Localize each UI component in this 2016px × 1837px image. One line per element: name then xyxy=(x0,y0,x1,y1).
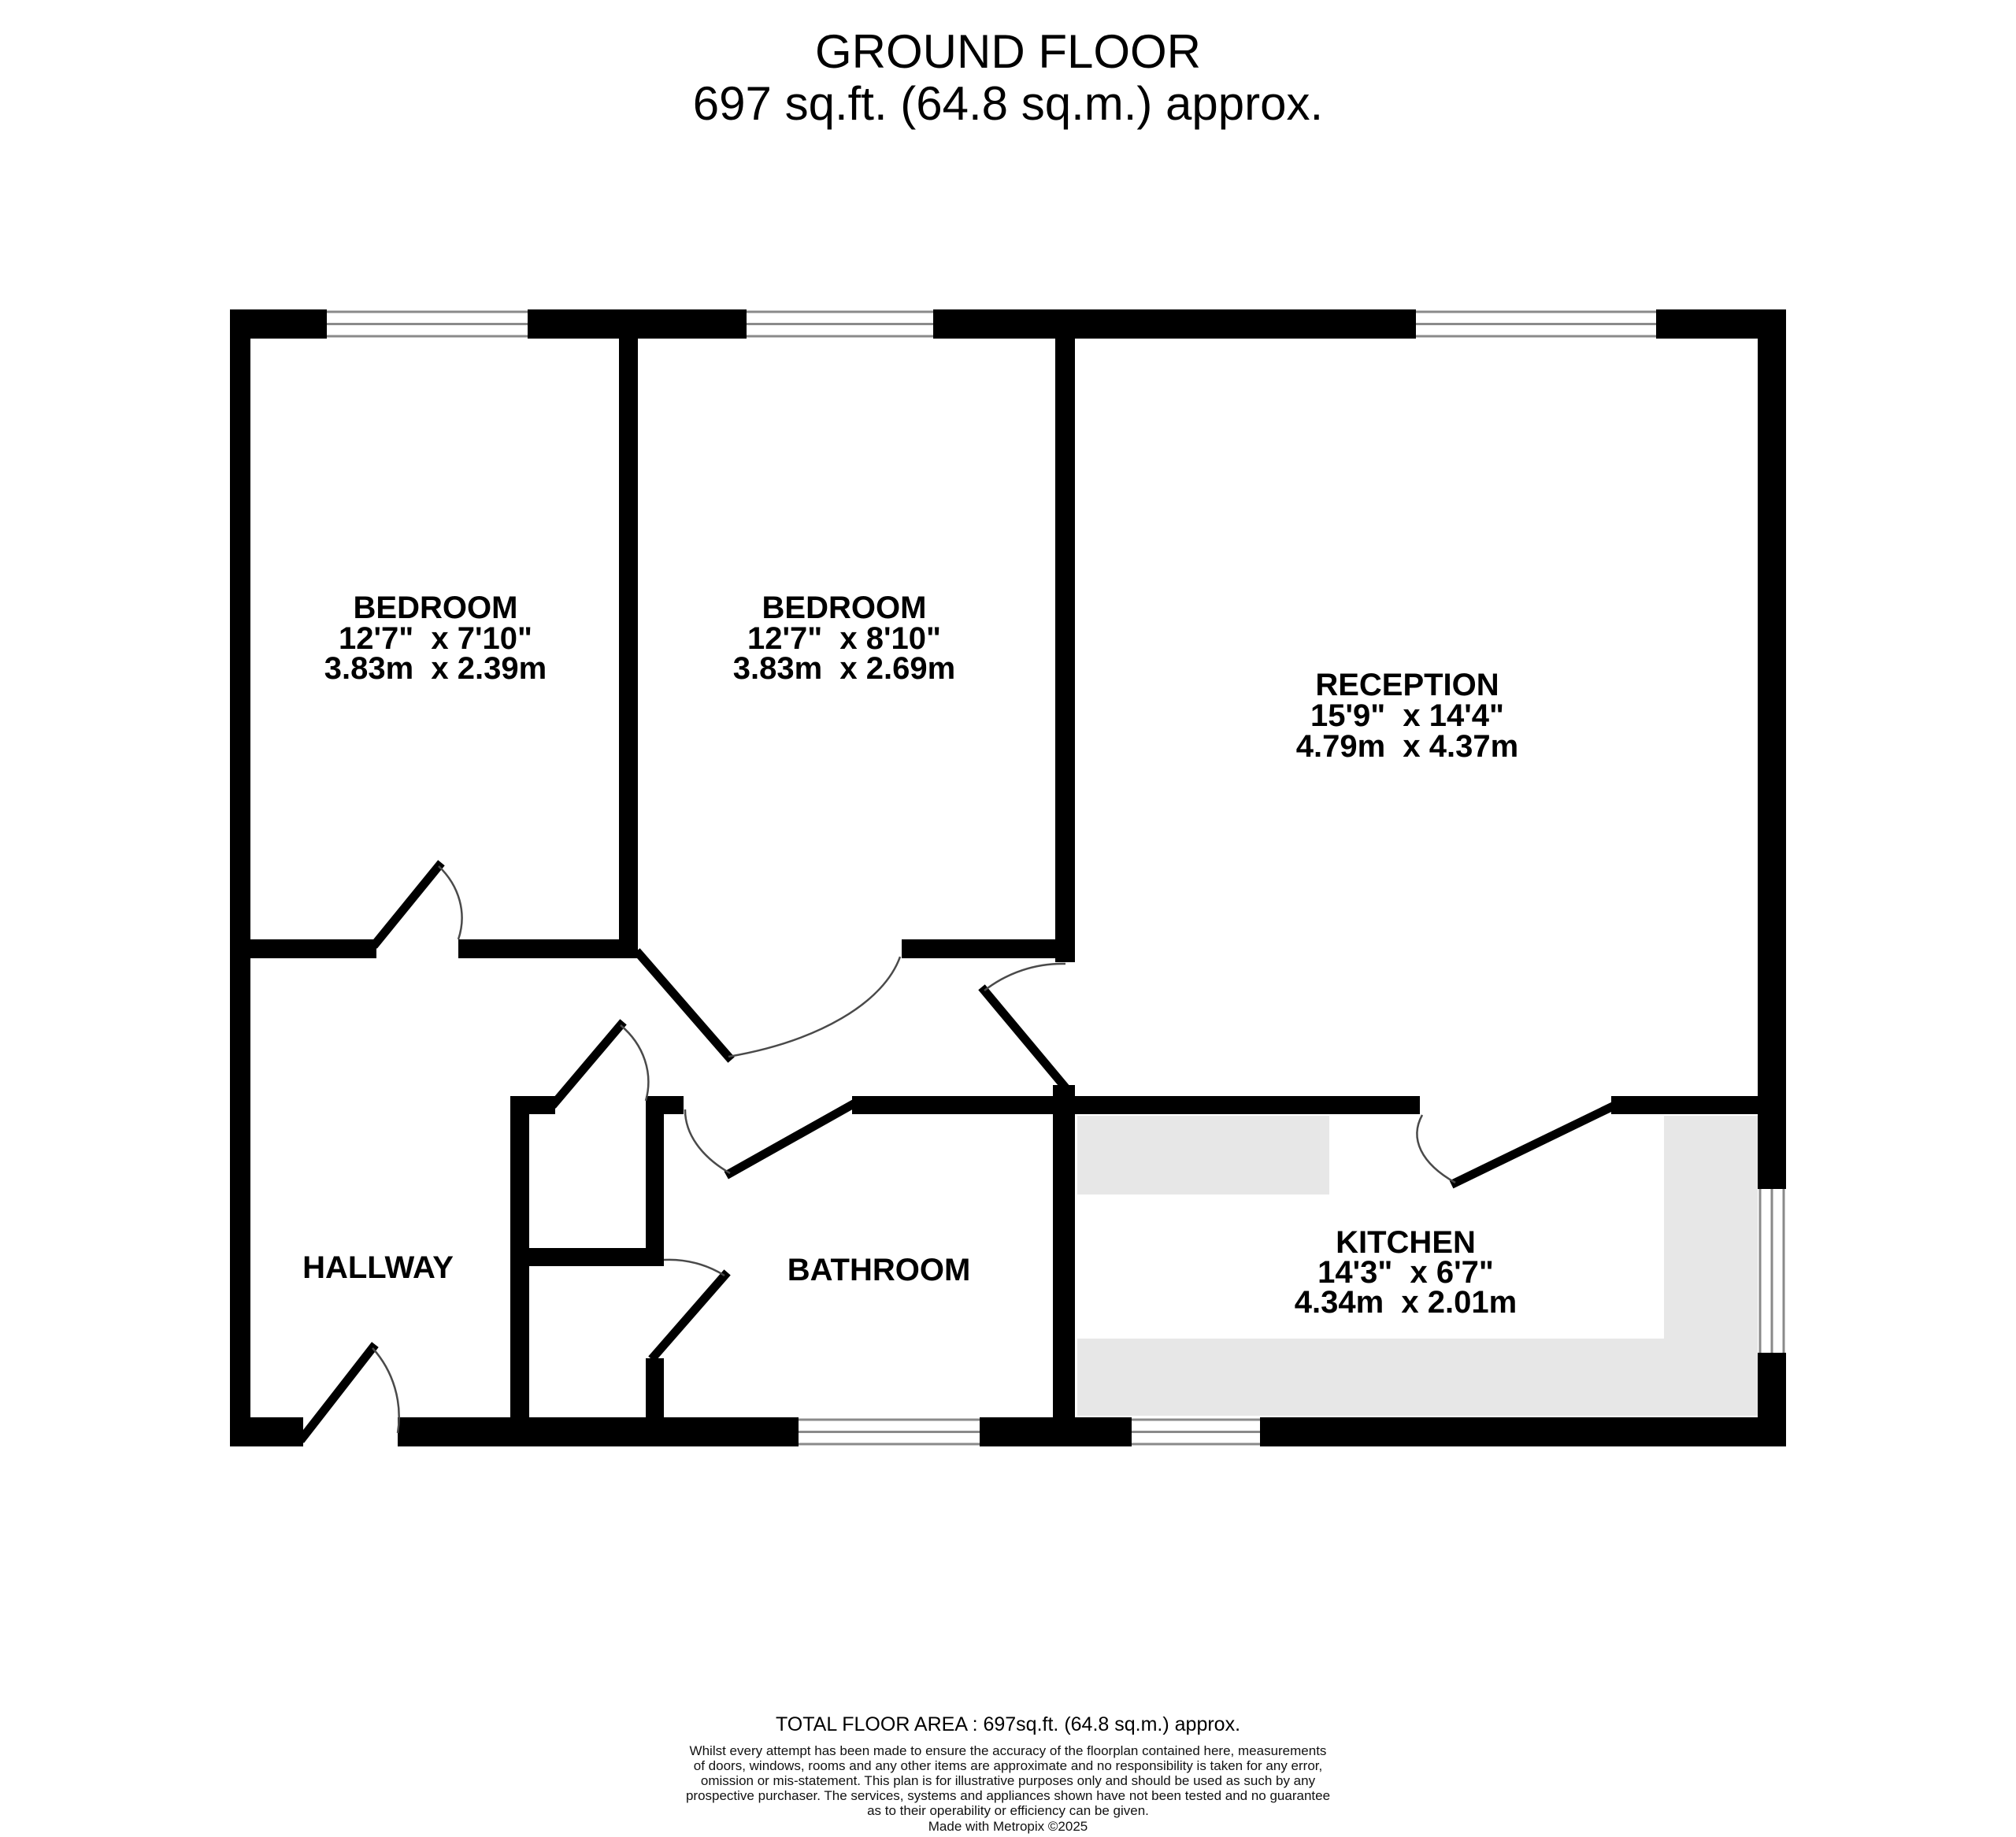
wall-bedrooms-bottom-b xyxy=(458,939,638,958)
wall-bedroom1-bedroom2 xyxy=(619,335,638,958)
wall-bathroom-top xyxy=(852,1096,1055,1114)
wall-closet-top-jamb xyxy=(529,1096,555,1114)
window-bedroom2 xyxy=(747,309,933,339)
room-dim-metric: 4.34m x 2.01m xyxy=(1295,1285,1517,1320)
room-name: BEDROOM xyxy=(354,591,518,625)
wall-exterior-left xyxy=(230,309,250,1446)
disclaimer-line: as to their operability or efficiency ca… xyxy=(867,1803,1149,1818)
credit-line: Made with Metropix ©2025 xyxy=(928,1819,1088,1834)
floorplan-canvas: GROUND FLOOR 697 sq.ft. (64.8 sq.m.) app… xyxy=(0,0,2016,1837)
kitchen-counter-top xyxy=(1077,1116,1329,1194)
wall-bedrooms-bottom-c xyxy=(902,939,1055,958)
title-line1: GROUND FLOOR xyxy=(815,25,1201,78)
wall-bathroom-kitchen xyxy=(1053,1085,1075,1446)
room-name: RECEPTION xyxy=(1315,668,1499,702)
disclaimer-line: of doors, windows, rooms and any other i… xyxy=(694,1758,1322,1773)
title-line2: 697 sq.ft. (64.8 sq.m.) approx. xyxy=(693,77,1323,130)
room-label-bathroom: BATHROOM xyxy=(787,1253,971,1287)
wall-exterior-bottom xyxy=(230,1417,1786,1446)
room-name: BEDROOM xyxy=(762,591,927,625)
wall-bathroom-lower-stub xyxy=(646,1358,664,1417)
room-dim-imperial: 15'9" x 14'4" xyxy=(1310,698,1504,733)
window-bedroom1 xyxy=(327,309,528,339)
room-label-bedroom1: BEDROOM 12'7" x 7'10" 3.83m x 2.39m xyxy=(324,591,547,686)
wall-bedrooms-bottom-a xyxy=(250,939,376,958)
window-kitchen-right xyxy=(1758,1189,1786,1353)
wall-closet-divider xyxy=(510,1248,664,1266)
window-kitchen-bottom xyxy=(1132,1417,1260,1446)
disclaimer-line: prospective purchaser. The services, sys… xyxy=(686,1788,1330,1803)
room-label-reception: RECEPTION 15'9" x 14'4" 4.79m x 4.37m xyxy=(1296,668,1518,764)
room-label-bedroom2: BEDROOM 12'7" x 8'10" 3.83m x 2.69m xyxy=(733,591,955,686)
disclaimer-line: omission or mis-statement. This plan is … xyxy=(701,1773,1316,1788)
wall-kitchen-top-right xyxy=(1611,1096,1758,1114)
room-dim-metric: 3.83m x 2.69m xyxy=(733,651,955,686)
room-dim-metric: 3.83m x 2.39m xyxy=(324,651,547,686)
room-dim-metric: 4.79m x 4.37m xyxy=(1296,729,1518,764)
background xyxy=(0,0,2016,1837)
wall-bedroom2-reception xyxy=(1055,335,1075,962)
kitchen-counter-bottom xyxy=(1077,1339,1758,1416)
total-floor-area: TOTAL FLOOR AREA : 697sq.ft. (64.8 sq.m.… xyxy=(776,1713,1240,1735)
window-bathroom xyxy=(799,1417,980,1446)
window-reception xyxy=(1416,309,1656,339)
wall-closet-right xyxy=(646,1096,664,1266)
wall-kitchen-top-left xyxy=(1075,1096,1420,1114)
room-label-hallway: HALLWAY xyxy=(302,1250,454,1285)
disclaimer-line: Whilst every attempt has been made to en… xyxy=(690,1743,1327,1758)
